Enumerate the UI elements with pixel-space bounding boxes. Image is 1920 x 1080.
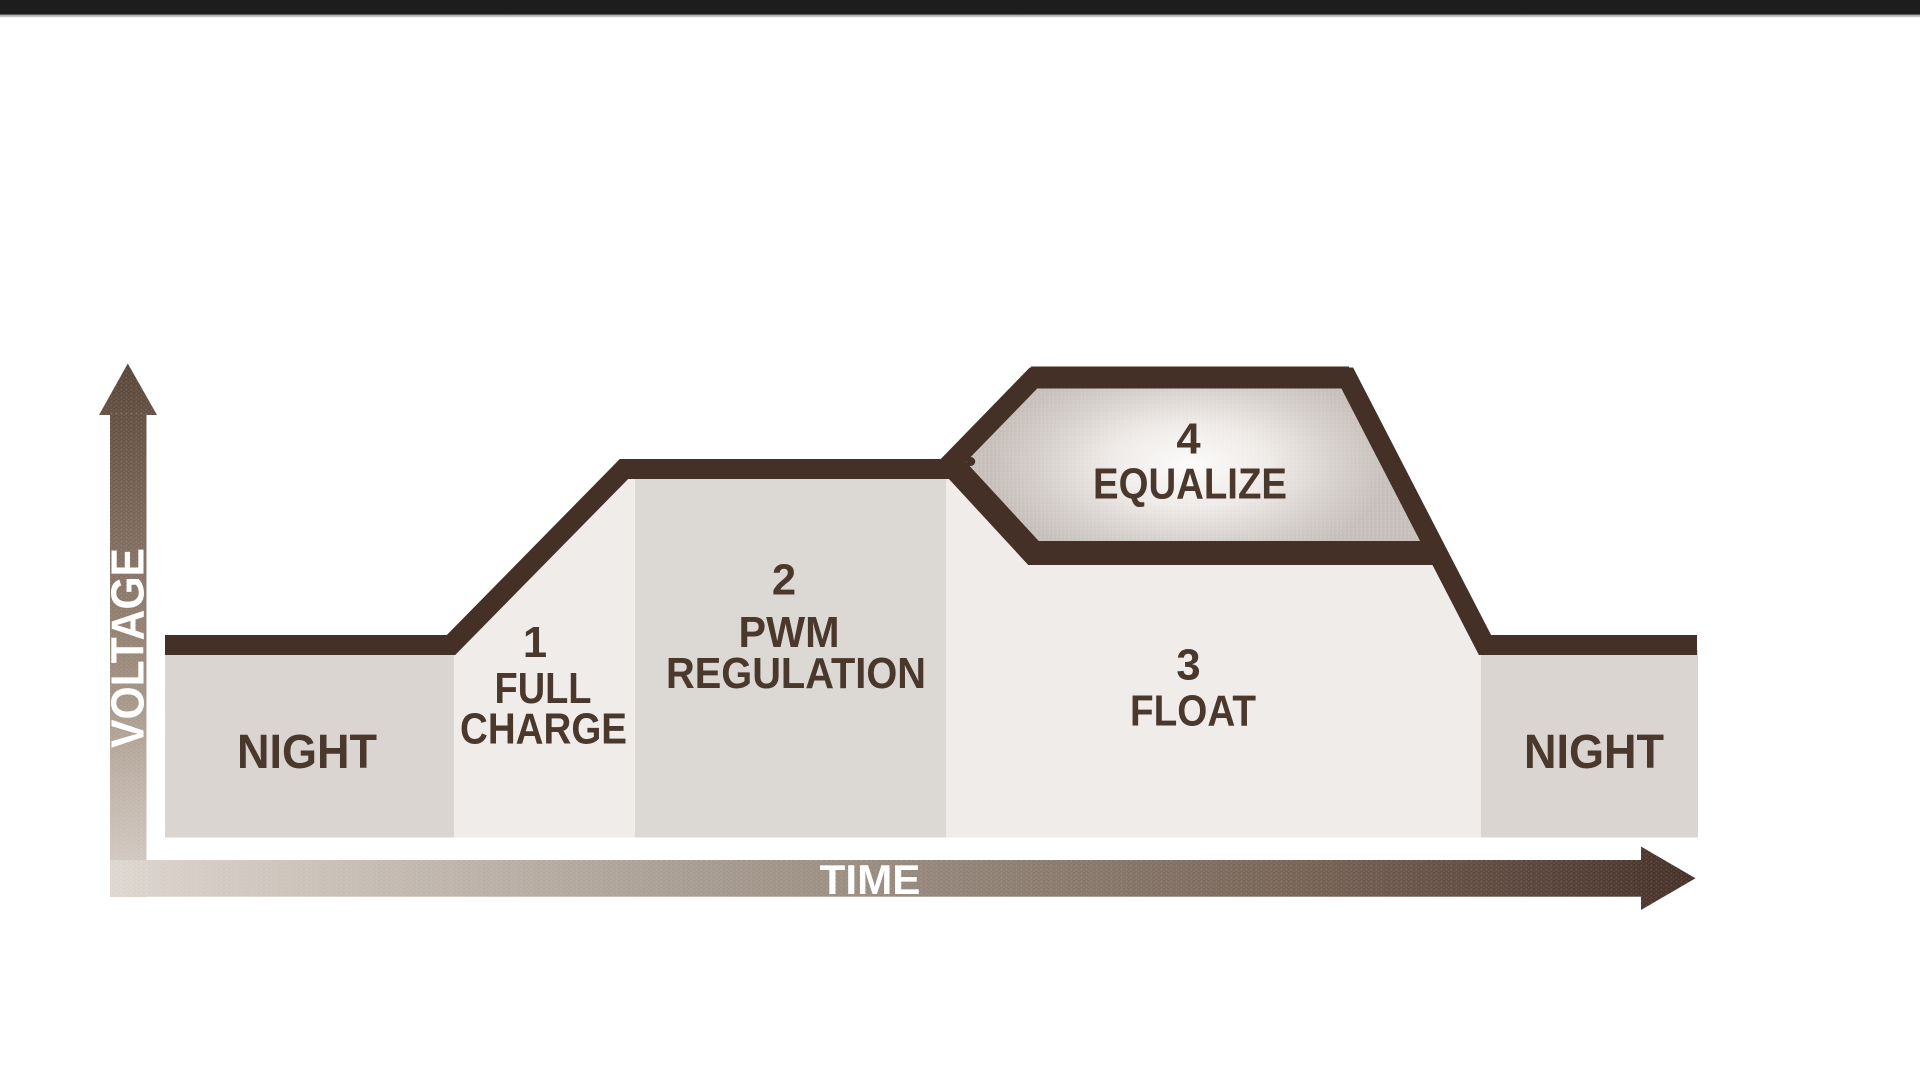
svg-text:TIME: TIME [820,857,921,903]
svg-text:CHARGE: CHARGE [460,706,627,754]
svg-text:NIGHT: NIGHT [237,725,377,779]
svg-text:REGULATION: REGULATION [666,650,926,698]
svg-text:VOLTAGE: VOLTAGE [101,548,153,748]
svg-text:2: 2 [772,557,796,605]
svg-text:1: 1 [523,619,547,667]
svg-text:4: 4 [1176,416,1201,464]
svg-text:EQUALIZE: EQUALIZE [1093,461,1287,509]
svg-text:FLOAT: FLOAT [1130,688,1256,736]
svg-text:NIGHT: NIGHT [1524,725,1664,779]
svg-text:3: 3 [1176,642,1200,690]
